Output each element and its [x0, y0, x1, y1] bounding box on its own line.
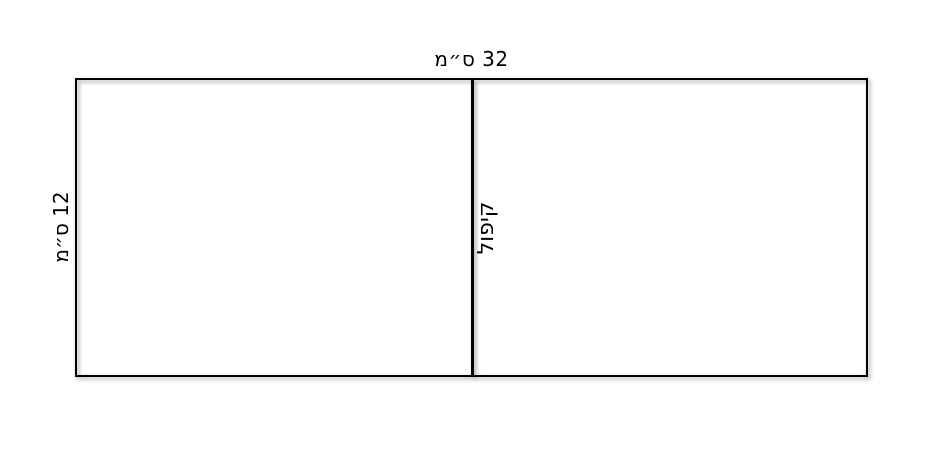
folded-rectangle-diagram: 32 ס״מ 12 ס״מ קיפול [0, 0, 945, 457]
width-dimension-label: 32 ס״מ [75, 47, 868, 71]
height-dimension-label: 12 ס״מ [49, 127, 73, 327]
fold-label: קיפול [475, 178, 499, 278]
